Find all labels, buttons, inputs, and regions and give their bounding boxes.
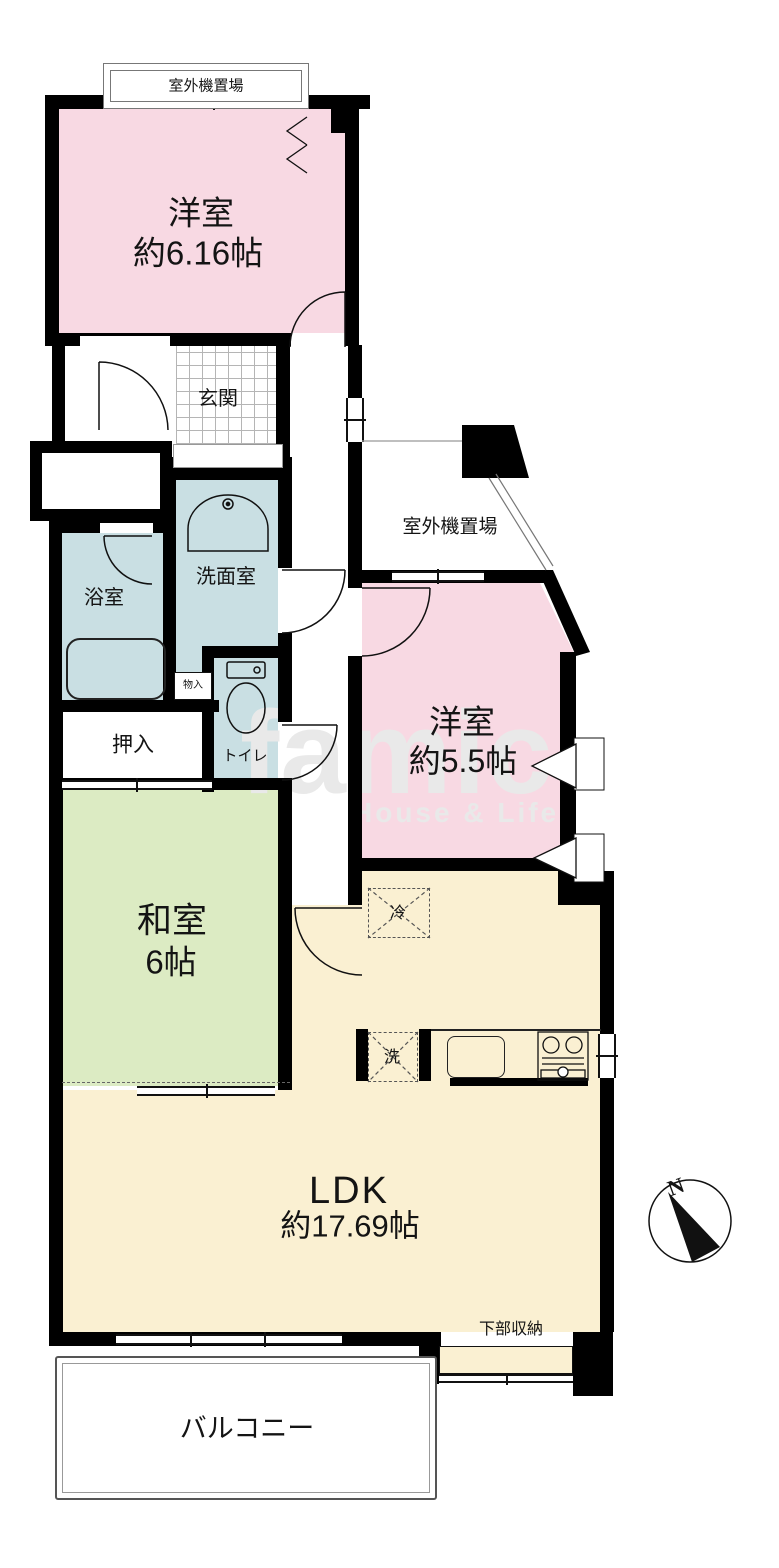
room-western2-name: 洋室: [429, 706, 495, 739]
room-western1-name: 洋室: [168, 197, 234, 230]
room-japanese-size: 6帖: [145, 946, 196, 979]
futon-closet-label: 押入: [112, 735, 154, 756]
toilet-icon: [227, 662, 265, 733]
toilet-label: トイレ: [222, 749, 267, 764]
room-ldk-size: 約17.69帖: [280, 1211, 420, 1242]
outdoor-unit-label-mid: 室外機置場: [402, 518, 497, 537]
west2-window-box-2: [574, 834, 604, 882]
west2-window-box-1: [574, 738, 604, 790]
washer-label: 洗: [384, 1050, 400, 1066]
door-entrance: [99, 362, 168, 430]
room-western2-size: 約5.5帖: [409, 745, 518, 777]
fridge-label: 冷: [390, 906, 406, 922]
balcony-label: バルコニー: [180, 1416, 314, 1443]
lower-storage-label: 下部収納: [479, 1322, 543, 1338]
entrance-label: 玄関: [198, 389, 238, 409]
floor-plan: famic House & Life: [0, 0, 779, 1568]
diagonal-wall-western2: [538, 570, 590, 656]
door-toilet: [282, 725, 337, 780]
diagonal-wall-outdoor: [462, 425, 529, 478]
chevron-icon-2: [534, 838, 576, 878]
sink-icon: [188, 495, 268, 551]
door-western2: [362, 588, 430, 656]
room-ldk-name: LDK: [309, 1172, 389, 1210]
boundary-diagonal-line: [489, 474, 553, 570]
outdoor-unit-label-top: 室外機置場: [168, 79, 243, 94]
room-western1-size: 約6.16帖: [133, 237, 263, 270]
door-bathroom: [104, 536, 152, 584]
compass-icon: [649, 1180, 731, 1262]
small-storage-label: 物入: [183, 681, 203, 691]
bathroom-label: 浴室: [84, 588, 124, 608]
symbols-layer: [0, 0, 779, 1568]
chevron-icon-1: [532, 744, 576, 788]
room-japanese-name: 和室: [137, 904, 207, 939]
stove-icon: [538, 1032, 588, 1080]
accordion-door-icon: [287, 117, 307, 173]
door-washroom: [282, 570, 345, 633]
door-western1: [290, 292, 345, 347]
washroom-label: 洗面室: [196, 567, 256, 587]
door-ldk: [295, 908, 362, 975]
